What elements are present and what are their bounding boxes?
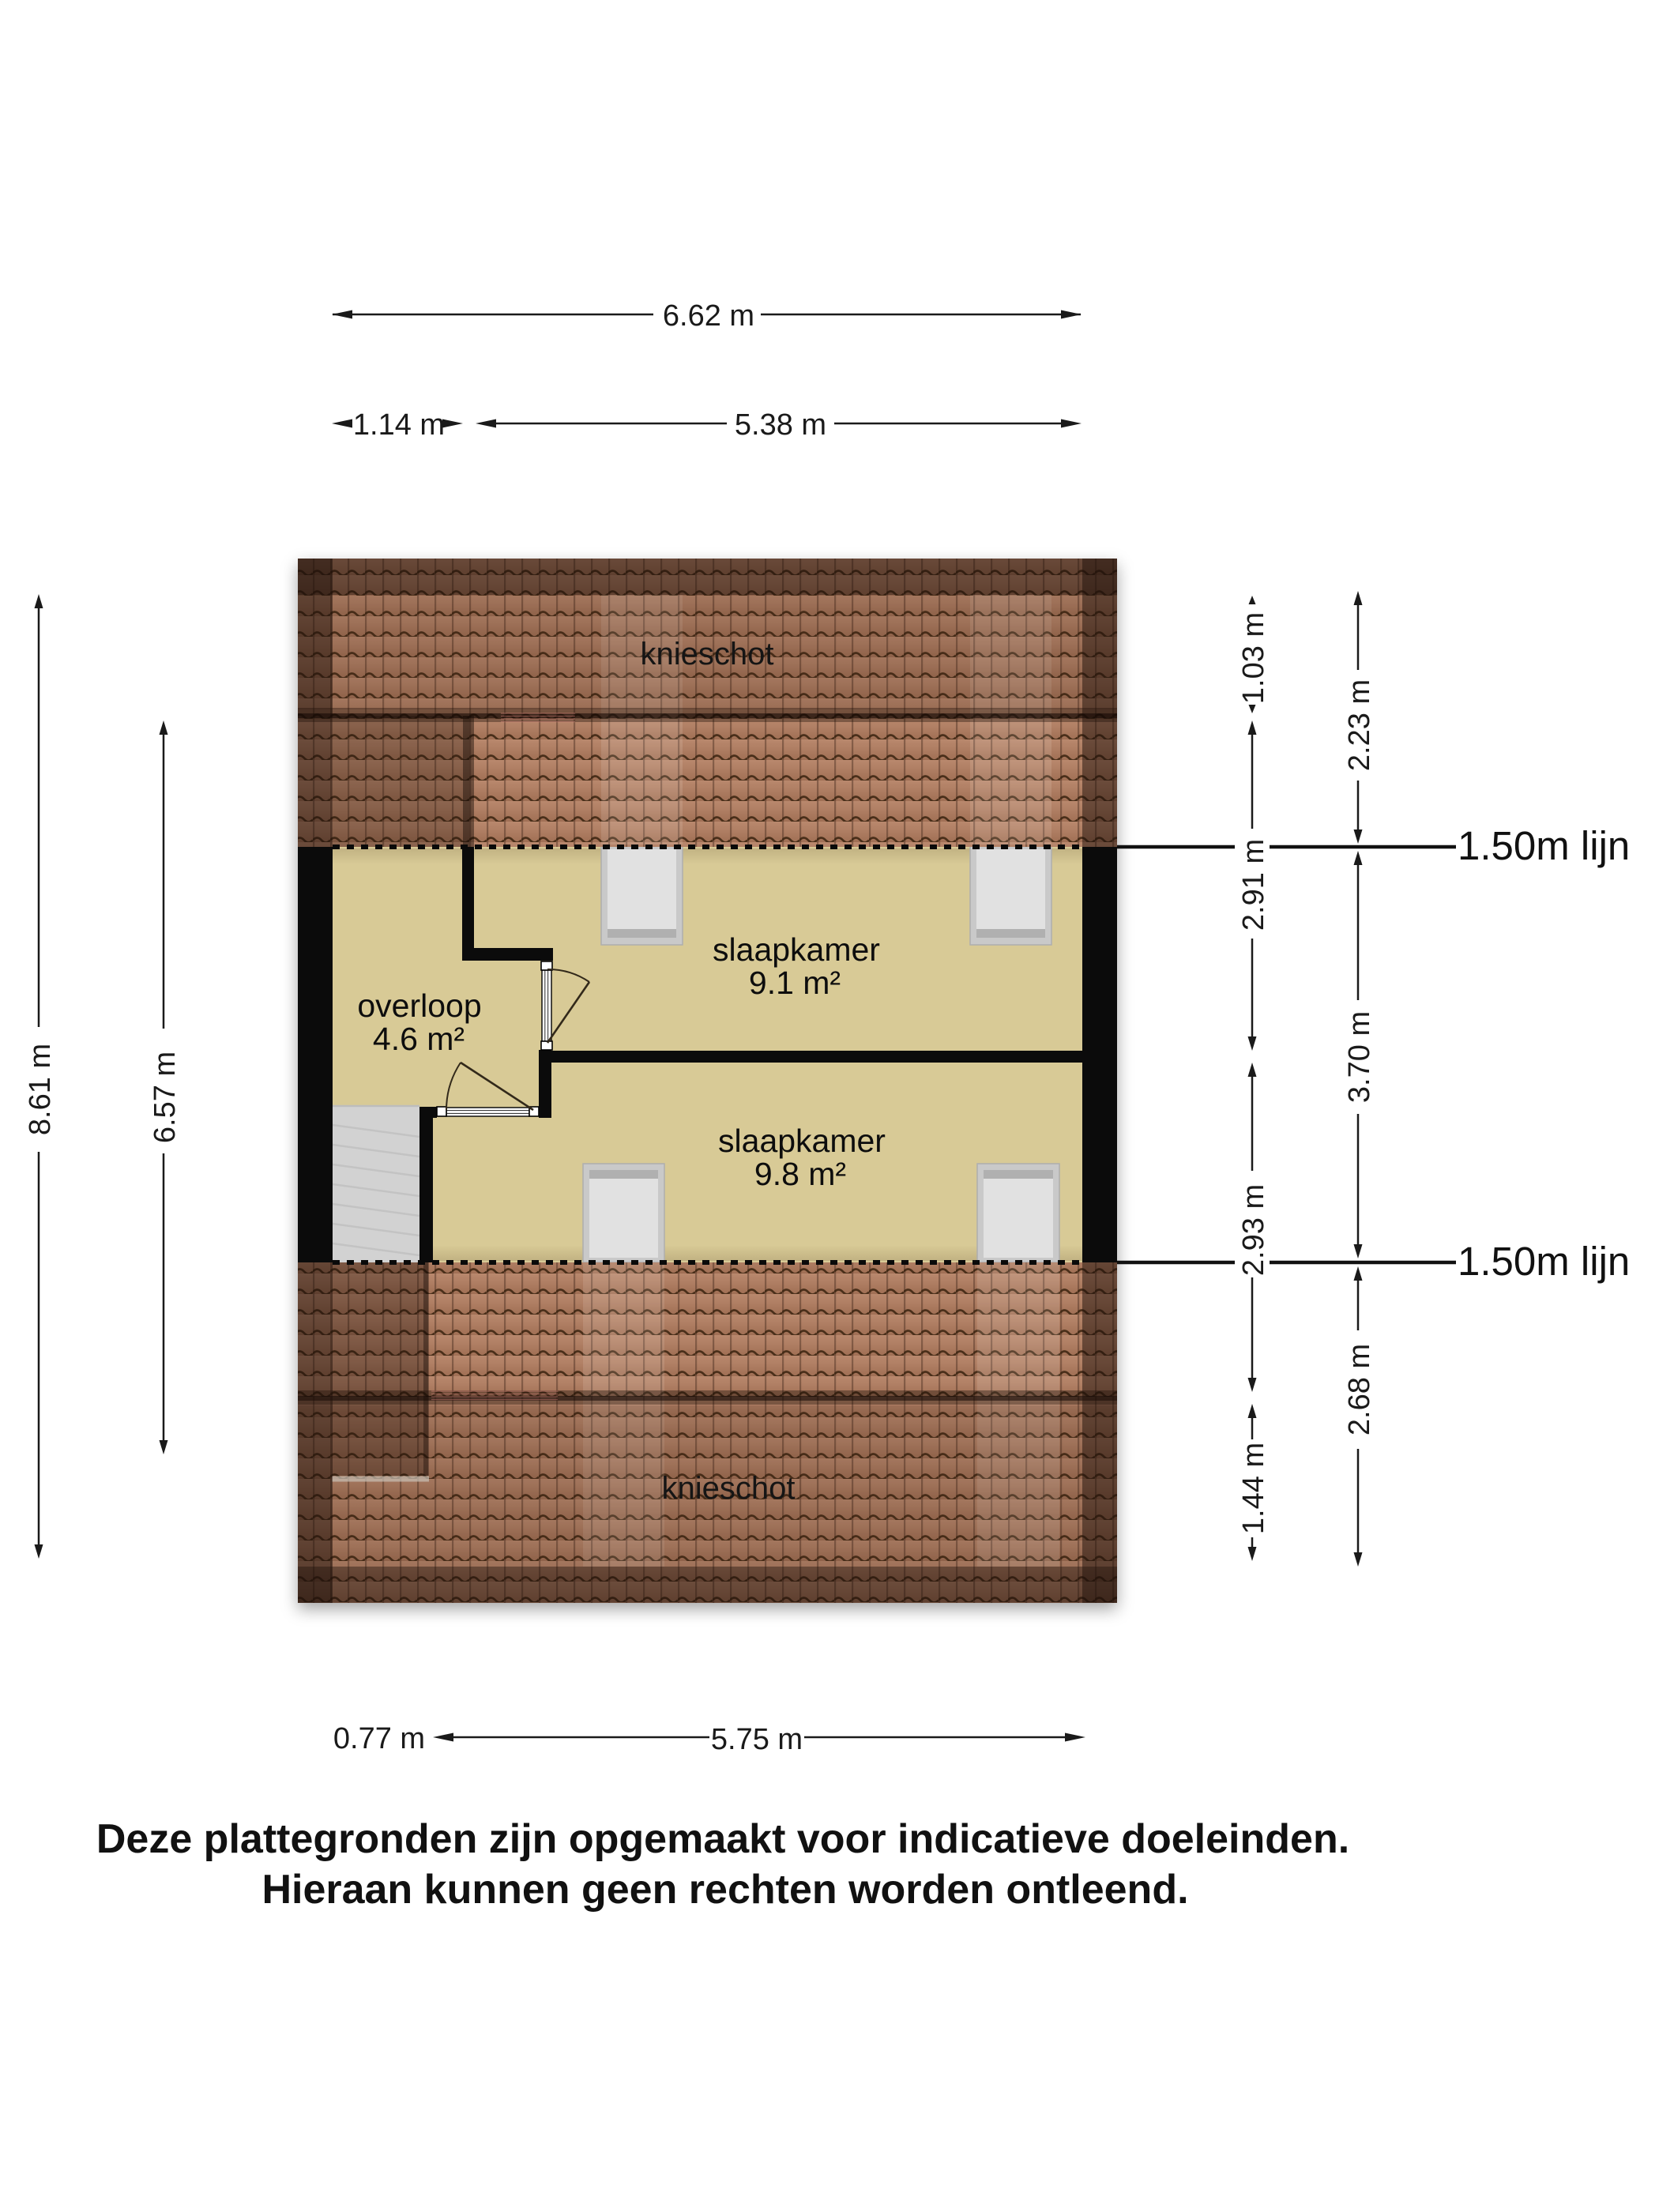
svg-text:knieschot: knieschot [641,637,774,671]
svg-text:6.62 m: 6.62 m [663,299,754,333]
svg-text:1.03 m: 1.03 m [1237,612,1270,704]
svg-text:5.38 m: 5.38 m [735,408,826,442]
svg-text:2.91 m: 2.91 m [1237,839,1270,931]
svg-text:slaapkamer: slaapkamer [713,931,880,968]
svg-text:9.8 m²: 9.8 m² [754,1156,846,1192]
svg-text:overloop: overloop [357,987,481,1024]
svg-text:1.50m lijn: 1.50m lijn [1458,1239,1630,1284]
svg-text:Hieraan kunnen geen rechten wo: Hieraan kunnen geen rechten worden ontle… [261,1867,1188,1913]
svg-text:slaapkamer: slaapkamer [718,1123,886,1159]
svg-text:1.14 m: 1.14 m [353,408,445,442]
svg-text:6.57 m: 6.57 m [149,1051,182,1143]
svg-text:3.70 m: 3.70 m [1343,1011,1376,1103]
svg-text:2.93 m: 2.93 m [1237,1184,1270,1276]
svg-text:1.44 m: 1.44 m [1237,1443,1270,1534]
svg-text:1.50m lijn: 1.50m lijn [1458,823,1630,868]
svg-text:8.61 m: 8.61 m [24,1044,57,1135]
svg-text:4.6 m²: 4.6 m² [373,1021,465,1057]
svg-text:5.75 m: 5.75 m [711,1723,803,1756]
svg-text:Deze plattegronden zijn opgema: Deze plattegronden zijn opgemaakt voor i… [96,1816,1349,1862]
svg-text:0.77 m: 0.77 m [333,1722,425,1755]
svg-text:9.1 m²: 9.1 m² [749,965,841,1001]
svg-text:2.23 m: 2.23 m [1343,679,1376,771]
svg-text:knieschot: knieschot [662,1471,796,1506]
svg-text:2.68 m: 2.68 m [1343,1344,1376,1435]
